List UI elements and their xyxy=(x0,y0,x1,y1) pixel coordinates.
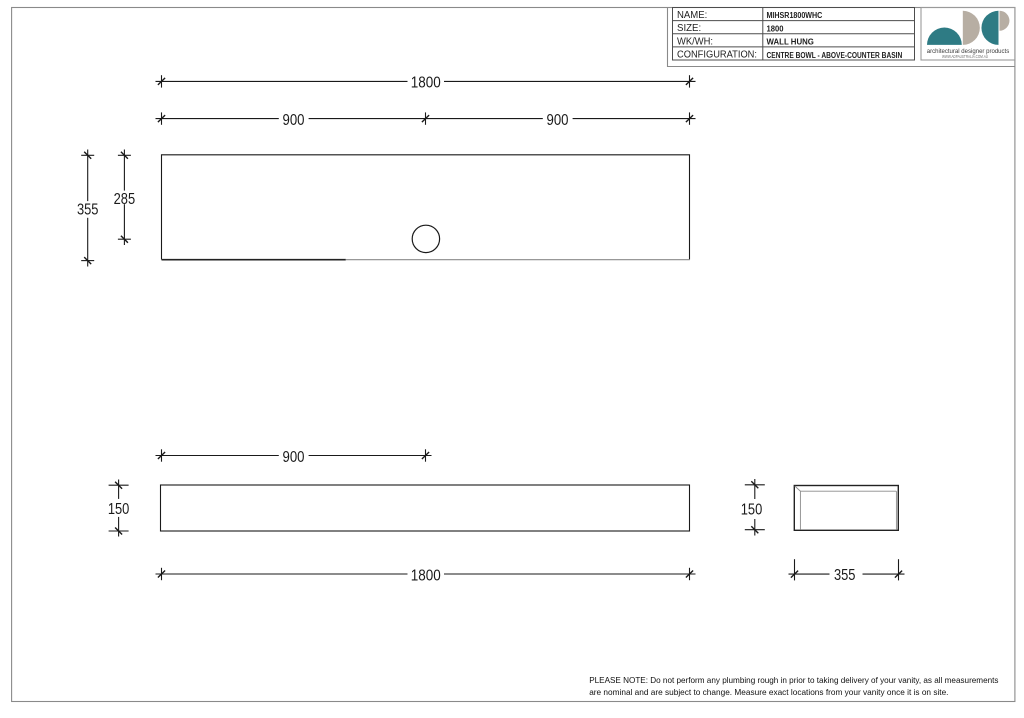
svg-text:900: 900 xyxy=(547,112,569,129)
svg-text:1800: 1800 xyxy=(411,75,441,92)
svg-text:900: 900 xyxy=(283,112,305,129)
svg-text:are nominal and are subject to: are nominal and are subject to change. M… xyxy=(589,687,948,697)
svg-text:WWW.ADPAUSTRALIA.COM.AU: WWW.ADPAUSTRALIA.COM.AU xyxy=(942,54,988,59)
svg-text:CENTRE BOWL - ABOVE-COUNTER BA: CENTRE BOWL - ABOVE-COUNTER BASIN xyxy=(767,51,903,60)
svg-text:CONFIGURATION:: CONFIGURATION: xyxy=(677,50,757,61)
svg-text:WK/WH:: WK/WH: xyxy=(677,36,713,47)
svg-text:150: 150 xyxy=(741,501,763,518)
svg-text:PLEASE NOTE: Do not perform an: PLEASE NOTE: Do not perform any plumbing… xyxy=(589,675,998,685)
svg-text:WALL HUNG: WALL HUNG xyxy=(767,38,814,47)
svg-text:NAME:: NAME: xyxy=(677,10,707,21)
svg-text:1800: 1800 xyxy=(767,25,785,34)
svg-text:150: 150 xyxy=(108,501,130,518)
svg-text:355: 355 xyxy=(834,567,856,584)
svg-text:900: 900 xyxy=(283,449,305,466)
svg-text:MIHSR1800WHC: MIHSR1800WHC xyxy=(767,11,823,20)
svg-text:355: 355 xyxy=(77,202,99,219)
svg-text:SIZE:: SIZE: xyxy=(677,23,701,34)
svg-text:1800: 1800 xyxy=(411,567,441,584)
svg-text:285: 285 xyxy=(114,191,136,208)
